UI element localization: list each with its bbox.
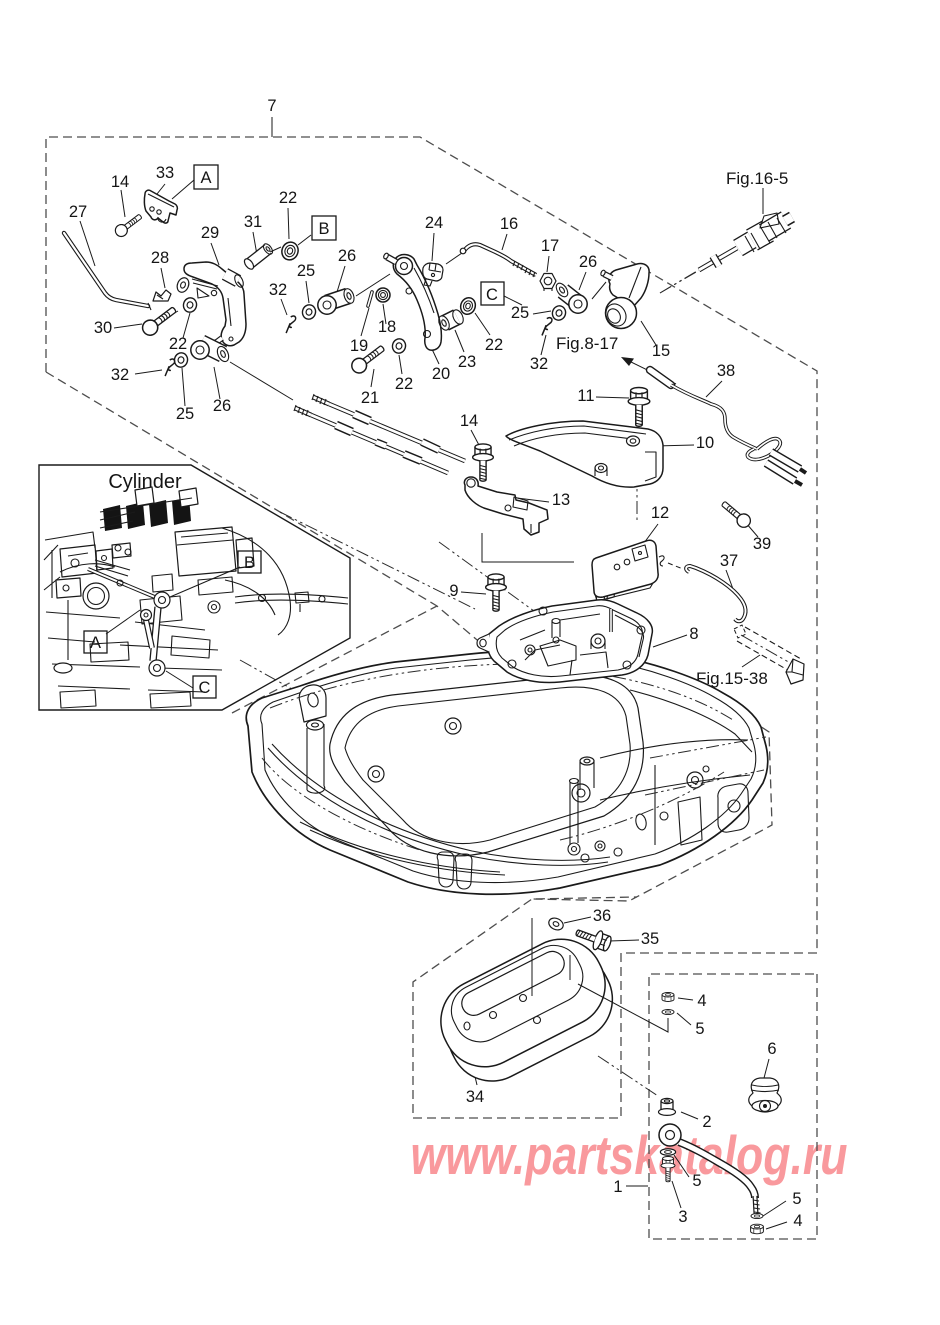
svg-text:www.partskatalog.ru: www.partskatalog.ru <box>411 1124 848 1186</box>
svg-text:39: 39 <box>753 535 771 553</box>
svg-text:5: 5 <box>792 1190 801 1208</box>
svg-text:38: 38 <box>717 362 735 380</box>
svg-text:5: 5 <box>695 1020 704 1038</box>
svg-text:26: 26 <box>579 253 597 271</box>
svg-text:4: 4 <box>697 992 706 1010</box>
svg-text:20: 20 <box>432 365 450 383</box>
svg-text:26: 26 <box>213 397 231 415</box>
svg-text:27: 27 <box>69 203 87 221</box>
svg-text:Fig.8-17: Fig.8-17 <box>556 334 618 353</box>
svg-text:C: C <box>486 286 498 304</box>
svg-text:21: 21 <box>361 389 379 407</box>
svg-text:B: B <box>318 220 329 238</box>
svg-text:22: 22 <box>395 375 413 393</box>
svg-text:14: 14 <box>111 173 129 191</box>
svg-text:17: 17 <box>541 237 559 255</box>
svg-text:35: 35 <box>641 930 659 948</box>
svg-text:8: 8 <box>689 625 698 643</box>
svg-text:2: 2 <box>702 1113 711 1131</box>
svg-text:11: 11 <box>577 387 594 405</box>
svg-text:31: 31 <box>244 213 262 231</box>
svg-text:33: 33 <box>156 164 174 182</box>
svg-text:30: 30 <box>94 319 112 337</box>
svg-text:9: 9 <box>449 582 458 600</box>
svg-text:26: 26 <box>338 247 356 265</box>
svg-text:23: 23 <box>458 353 476 371</box>
svg-text:25: 25 <box>511 304 529 322</box>
svg-text:3: 3 <box>678 1208 687 1226</box>
svg-text:7: 7 <box>267 97 276 115</box>
svg-text:24: 24 <box>425 214 443 232</box>
svg-text:12: 12 <box>651 504 669 522</box>
svg-text:28: 28 <box>151 249 169 267</box>
svg-text:29: 29 <box>201 224 219 242</box>
svg-text:22: 22 <box>485 336 503 354</box>
svg-text:18: 18 <box>378 318 396 336</box>
svg-text:16: 16 <box>500 215 518 233</box>
svg-text:22: 22 <box>279 189 297 207</box>
svg-text:25: 25 <box>176 405 194 423</box>
svg-text:32: 32 <box>111 366 129 384</box>
svg-text:5: 5 <box>692 1172 701 1190</box>
svg-text:B: B <box>244 554 255 572</box>
svg-text:A: A <box>200 169 211 187</box>
svg-text:6: 6 <box>767 1040 776 1058</box>
svg-text:32: 32 <box>269 281 287 299</box>
svg-text:13: 13 <box>552 491 570 509</box>
svg-text:10: 10 <box>696 434 714 452</box>
svg-text:36: 36 <box>593 907 611 925</box>
svg-text:34: 34 <box>466 1088 484 1106</box>
svg-text:22: 22 <box>169 335 187 353</box>
svg-text:Fig.16-5: Fig.16-5 <box>726 169 788 188</box>
svg-text:14: 14 <box>460 412 478 430</box>
svg-text:25: 25 <box>297 262 315 280</box>
svg-text:32: 32 <box>530 355 548 373</box>
svg-text:A: A <box>90 634 101 652</box>
svg-text:19: 19 <box>350 337 368 355</box>
svg-text:4: 4 <box>793 1212 802 1230</box>
svg-text:37: 37 <box>720 552 738 570</box>
svg-text:15: 15 <box>652 342 670 360</box>
svg-text:1: 1 <box>613 1178 622 1196</box>
svg-text:C: C <box>199 679 211 697</box>
